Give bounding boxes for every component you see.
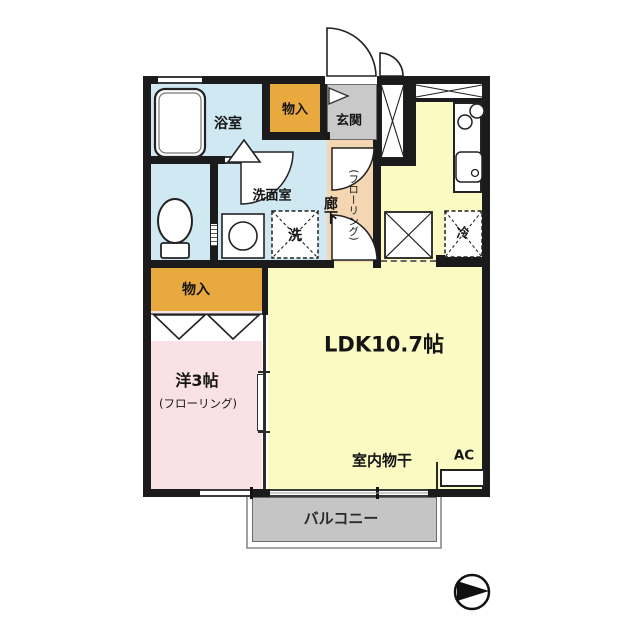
- wall-right: [482, 76, 490, 497]
- kitchen-window-band: [416, 84, 482, 98]
- washroom-label: 洗面室: [252, 190, 291, 203]
- bath-door-sill: [225, 156, 262, 164]
- wall-storage-entrance-divider: [320, 84, 327, 140]
- ac-divider-line: [436, 462, 438, 489]
- wall-bottom-mid: [253, 489, 270, 497]
- wall-bath-storage-divider: [262, 84, 270, 132]
- indoor-drying-label: 室内物干: [352, 454, 412, 469]
- wall-under-brace-strip: [377, 158, 416, 166]
- wall-left: [143, 76, 151, 497]
- wall-top-right: [377, 76, 490, 84]
- wall-bottom-left: [143, 489, 200, 497]
- kitchen-ldk-boundary-dashed: [381, 260, 436, 262]
- western-room-flooring-label: (フローリング): [159, 398, 237, 410]
- bathroom-label: 浴室: [214, 117, 242, 131]
- refrigerator-label: 冷: [456, 228, 469, 241]
- laundry-pan-label: 洗: [288, 229, 302, 243]
- entrance-door-arc-small: [380, 53, 403, 76]
- wall-kitchen-post: [404, 76, 416, 166]
- corridor-label: 廊下: [323, 196, 337, 224]
- sliding-door-panel: [257, 374, 264, 431]
- ldk-label: LDK10.7帖: [324, 335, 444, 356]
- sliding-door-tick-bottom: [258, 431, 270, 433]
- wall-kitchen-ldk-stub: [436, 255, 482, 267]
- kitchen-counter: [453, 102, 482, 193]
- room-entrance-fill: [327, 84, 377, 140]
- western-room-window: [200, 489, 253, 497]
- closet-door-band: [151, 313, 262, 341]
- wall-mid-horizontal: [143, 260, 334, 268]
- compass-icon: [455, 575, 489, 609]
- entrance-door-arc-large: [327, 28, 376, 76]
- wall-partition-upper: [262, 260, 268, 315]
- wall-bottom-right: [428, 489, 490, 497]
- wall-top-mid: [202, 76, 325, 84]
- storage-lower-label: 物入: [182, 283, 210, 297]
- storage-upper-label: 物入: [282, 104, 308, 117]
- ac-label: AC: [454, 449, 474, 463]
- balcony-sliding-window: [270, 489, 428, 497]
- corridor-flooring-label: (フローリング): [348, 169, 359, 240]
- bathroom-window: [158, 76, 202, 84]
- western-room-label: 洋3帖: [175, 373, 218, 389]
- floorplan-canvas: 浴室 物入 玄関 洗面室 廊下 (フローリング) 洗 冷 物入 洋3帖 (フロー…: [0, 0, 640, 640]
- toilet-door: [210, 224, 218, 246]
- wall-bath-bottom: [143, 156, 225, 164]
- balcony-label: バルコニー: [304, 512, 379, 527]
- cross-brace-strip: [381, 84, 404, 158]
- entrance-label: 玄関: [336, 115, 362, 128]
- sliding-door-tick-top: [258, 371, 270, 373]
- wall-toilet-divider-upper: [210, 164, 218, 224]
